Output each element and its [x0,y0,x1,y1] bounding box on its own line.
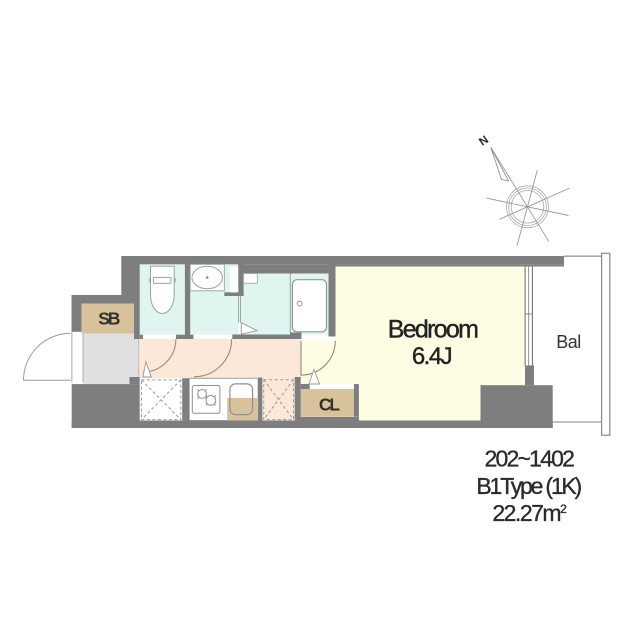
svg-text:202~1402: 202~1402 [485,446,575,472]
svg-text:6.4J: 6.4J [412,343,452,370]
svg-text:N: N [477,134,491,149]
svg-text:Bal: Bal [556,332,581,352]
svg-text:B1Type (1K): B1Type (1K) [476,473,581,499]
svg-text:22.27m2: 22.27m2 [492,500,567,526]
svg-text:SB: SB [98,308,119,328]
svg-text:CL: CL [319,394,340,414]
svg-text:Bedroom: Bedroom [388,315,478,343]
